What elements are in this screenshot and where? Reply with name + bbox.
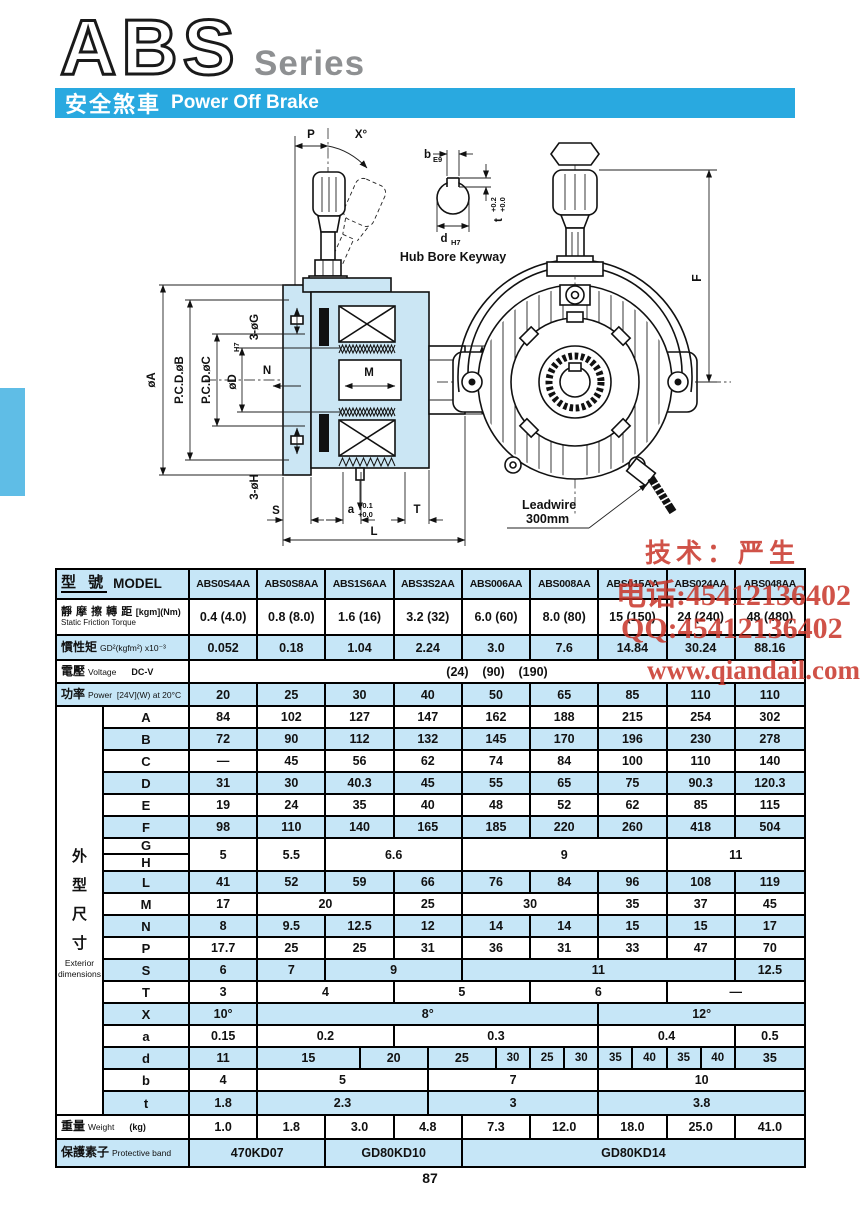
table-cell: 112 xyxy=(326,729,394,749)
div: 6791112.5 xyxy=(190,960,804,980)
div: 1.82.333.8 xyxy=(190,1092,804,1114)
table-cell: 59 xyxy=(326,872,394,892)
table-cell: 20 xyxy=(190,684,258,705)
div: 313040.34555657590.3120.3 xyxy=(190,773,804,793)
table-cell: 98 xyxy=(190,817,258,837)
rect xyxy=(339,360,401,400)
dim-label-a-tol-top: +0.1 xyxy=(358,501,373,510)
table-cell: 25 xyxy=(258,684,326,705)
rect xyxy=(547,262,603,276)
div: A84102127147162188215254302B729011213214… xyxy=(104,707,804,1114)
div: Power [24V](W) at 20°C xyxy=(88,691,181,700)
table-cell: 76 xyxy=(463,872,531,892)
table-row-b: b45710 xyxy=(104,1070,804,1092)
table-cell: 41 xyxy=(190,872,258,892)
table-cell: 4.8 xyxy=(395,1116,463,1138)
table-cell: 9 xyxy=(326,960,462,980)
div: M xyxy=(104,894,190,914)
dim-label-phi-d-tol: H7 xyxy=(232,342,241,352)
line xyxy=(651,478,673,512)
div: 470KD07GD80KD10GD80KD14 xyxy=(190,1140,804,1166)
table-cell: 52 xyxy=(531,795,599,815)
table-cell: 302 xyxy=(736,707,804,727)
div: 靜 摩 擦 轉 距[kgm](Nm) xyxy=(61,606,184,618)
table-cell: 140 xyxy=(736,751,804,771)
table-cell: 65 xyxy=(531,773,599,793)
table-cell: 41.0 xyxy=(736,1116,804,1138)
rect xyxy=(315,260,341,276)
table-cell: 6.0 (60) xyxy=(463,600,531,634)
div: 41525966768496108119 xyxy=(190,872,804,892)
dim-label-m: M xyxy=(364,367,374,379)
rect xyxy=(319,414,329,452)
table-cell: — xyxy=(190,751,258,771)
table-cell: 5 xyxy=(258,1070,429,1090)
series-label: Series xyxy=(254,44,365,84)
table-cell: 100 xyxy=(599,751,667,771)
table-row-G-H: GH55.56.6911 xyxy=(104,839,804,872)
table-cell: 132 xyxy=(395,729,463,749)
table-cell: 119 xyxy=(736,872,804,892)
table-cell: 25 xyxy=(531,1048,565,1068)
table-cell: 25.0 xyxy=(668,1116,736,1138)
div: b xyxy=(104,1070,190,1090)
dim-label-3h: 3-øH xyxy=(249,474,261,500)
dim-label-s: S xyxy=(272,505,280,517)
polygon xyxy=(551,143,599,165)
table-cell: 20 xyxy=(361,1048,429,1068)
div: —4556627484100110140 xyxy=(190,751,804,771)
model-header: ABS0S8AA xyxy=(258,570,326,598)
table-cell: 278 xyxy=(736,729,804,749)
table-cell: 35 xyxy=(736,1048,804,1068)
div: t xyxy=(104,1092,190,1114)
div: H xyxy=(104,855,188,871)
leadwire-label-1: Leadwire xyxy=(522,498,576,512)
table-cell: 504 xyxy=(736,817,804,837)
model-header: ABS3S2AA xyxy=(395,570,463,598)
div: 電壓VoltageDC-V xyxy=(57,661,190,682)
table-cell: 10 xyxy=(599,1070,804,1090)
table-cell: 90 xyxy=(258,729,326,749)
table-cell: 20 xyxy=(258,894,394,914)
div: (kg) xyxy=(129,1123,146,1133)
table-cell: 0.2 xyxy=(258,1026,394,1046)
div: Voltage xyxy=(88,668,116,677)
table-cell: 110 xyxy=(668,751,736,771)
dim-label-b: b xyxy=(424,149,431,161)
table-cell: 37 xyxy=(668,894,736,914)
div: GH xyxy=(104,839,190,870)
div: 重量Weight(kg) xyxy=(61,1120,184,1133)
rect xyxy=(356,468,364,480)
div: 電壓 xyxy=(61,665,85,678)
section-banner: 安全煞車 Power Off Brake xyxy=(55,88,795,118)
rect xyxy=(448,178,459,186)
rect xyxy=(557,256,593,262)
brake-body-section xyxy=(283,278,465,510)
table-cell: 14 xyxy=(531,916,599,936)
div: 型 號 xyxy=(61,575,107,594)
polygon xyxy=(561,215,589,228)
div: GD²(kgfm²) x10⁻³ xyxy=(100,644,166,653)
div: 保護素子Protective band xyxy=(57,1140,190,1166)
table-cell: 19 xyxy=(190,795,258,815)
div: L xyxy=(104,872,190,892)
table-cell: 6 xyxy=(190,960,258,980)
table-row-L: L41525966768496108119 xyxy=(104,872,804,894)
table-cell: 102 xyxy=(258,707,326,727)
table-cell: 33 xyxy=(599,938,667,958)
watermark-line-1: 技术：严生 xyxy=(645,533,800,570)
table-cell: 74 xyxy=(463,751,531,771)
table-cell: 110 xyxy=(258,817,326,837)
div: E xyxy=(104,795,190,815)
rect xyxy=(303,278,391,292)
div: 45710 xyxy=(190,1070,804,1090)
table-cell: 40 xyxy=(395,795,463,815)
watermark-line-4: www.qiandail.com xyxy=(647,655,860,686)
div: 功率Power [24V](W) at 20°C xyxy=(61,688,184,701)
table-cell: 8 xyxy=(190,916,258,936)
table-cell: 62 xyxy=(599,795,667,815)
dim-label-d-tol: H7 xyxy=(451,238,461,247)
table-cell: 90.3 xyxy=(668,773,736,793)
table-cell: 418 xyxy=(668,817,736,837)
div: 型 號MODEL xyxy=(57,570,190,598)
table-row-power: 功率Power [24V](W) at 20°C2025304050658511… xyxy=(57,684,804,707)
div: 17.72525313631334770 xyxy=(190,938,804,958)
table-cell: 7.3 xyxy=(463,1116,531,1138)
table-row-protect: 保護素子Protective band470KD07GD80KD10GD80KD… xyxy=(57,1140,804,1166)
model-header: ABS006AA xyxy=(463,570,531,598)
table-cell: 165 xyxy=(395,817,463,837)
table-cell: 56 xyxy=(326,751,394,771)
table-cell: 7 xyxy=(258,960,326,980)
table-cell: 127 xyxy=(326,707,394,727)
dim-label-pcd-b: P.C.D.øB xyxy=(174,356,186,404)
table-cell: 1.8 xyxy=(258,1116,326,1138)
circle xyxy=(572,292,579,299)
div: Protective band xyxy=(112,1149,171,1158)
table-cell: 220 xyxy=(531,817,599,837)
div: 尺 xyxy=(72,907,87,922)
table-cell: 0.5 xyxy=(736,1026,804,1046)
line xyxy=(589,484,647,528)
polygon xyxy=(318,216,340,232)
table-cell: 45 xyxy=(395,773,463,793)
table-cell: 5 xyxy=(190,839,258,870)
div: A xyxy=(104,707,190,727)
table-cell: 145 xyxy=(463,729,531,749)
table-cell: 3 xyxy=(429,1092,600,1114)
dim-label-a-tol-bot: +0.0 xyxy=(358,510,373,519)
table-cell: 52 xyxy=(258,872,326,892)
table-cell: 12 xyxy=(395,916,463,936)
table-cell: 170 xyxy=(531,729,599,749)
table-cell: 0.15 xyxy=(190,1026,258,1046)
div: 55.56.6911 xyxy=(190,839,804,870)
table-cell: 36 xyxy=(463,938,531,958)
div: 84102127147162188215254302 xyxy=(190,707,804,727)
div: d xyxy=(104,1048,190,1068)
div: 重量 xyxy=(61,1120,85,1133)
watermark-line-2: 电话:45412136402 xyxy=(616,570,851,614)
technical-drawing: P X° xyxy=(55,120,855,565)
table-cell: 2.24 xyxy=(395,636,463,659)
table-row-E: E1924354048526285115 xyxy=(104,795,804,817)
dim-label-pcd-c: P.C.D.øC xyxy=(201,356,213,404)
release-lever xyxy=(309,172,347,282)
table-row-A: A84102127147162188215254302 xyxy=(104,707,804,729)
watermark-line-3: QQ:45412136402 xyxy=(621,612,843,646)
div: 111520253025303540354035 xyxy=(190,1048,804,1068)
table-cell: 47 xyxy=(668,938,736,958)
line xyxy=(357,226,367,242)
table-row-N: N89.512.5121414151517 xyxy=(104,916,804,938)
table-cell: 12.5 xyxy=(736,960,804,980)
model-header: ABS1S6AA xyxy=(326,570,394,598)
div: 10°8°12° xyxy=(190,1004,804,1024)
table-cell: 3.0 xyxy=(326,1116,394,1138)
div: 17202530353745 xyxy=(190,894,804,914)
table-cell: 40 xyxy=(633,1048,667,1068)
table-cell: 147 xyxy=(395,707,463,727)
model-header: ABS0S4AA xyxy=(190,570,258,598)
table-cell: 7 xyxy=(429,1070,600,1090)
rect xyxy=(566,228,584,260)
circle xyxy=(469,379,476,386)
table-cell: 24 xyxy=(258,795,326,815)
model-header: ABS008AA xyxy=(531,570,599,598)
dim-label-x-angle: X° xyxy=(355,129,368,141)
table-cell: 35 xyxy=(668,1048,702,1068)
table-cell: 120.3 xyxy=(736,773,804,793)
table-cell: 12.5 xyxy=(326,916,394,936)
table-cell: 6.6 xyxy=(326,839,462,870)
div: 寸 xyxy=(72,936,87,951)
table-row-S: S6791112.5 xyxy=(104,960,804,982)
table-cell: 84 xyxy=(531,751,599,771)
table-cell: 17 xyxy=(190,894,258,914)
rect xyxy=(319,308,329,346)
dim-label-p: P xyxy=(307,129,315,141)
div: 慣性矩 xyxy=(61,641,97,654)
table-cell: 15 xyxy=(668,916,736,936)
table-cell: 10° xyxy=(190,1004,258,1024)
table-cell: 31 xyxy=(190,773,258,793)
table-cell: 84 xyxy=(190,707,258,727)
table-cell: 17.7 xyxy=(190,938,258,958)
dim-label-t-key: t xyxy=(493,218,505,222)
rect xyxy=(569,363,581,371)
table-cell: 31 xyxy=(531,938,599,958)
table-cell: 11 xyxy=(463,960,736,980)
div: 靜 摩 擦 轉 距 xyxy=(61,606,133,618)
table-cell: 30 xyxy=(565,1048,599,1068)
rect xyxy=(567,312,583,322)
table-row-d: d111520253025303540354035 xyxy=(104,1048,804,1070)
div: 1.01.83.04.87.312.018.025.041.0 xyxy=(190,1116,804,1138)
table-cell: 35 xyxy=(599,1048,633,1068)
table-cell: 17 xyxy=(736,916,804,936)
path xyxy=(328,146,367,168)
abs-logo: ABS xyxy=(60,8,240,86)
table-cell: 3.8 xyxy=(599,1092,804,1114)
dim-label-l: L xyxy=(370,526,377,538)
table-cell: 2.3 xyxy=(258,1092,429,1114)
table-cell: 9 xyxy=(463,839,668,870)
table-cell: 110 xyxy=(736,684,804,705)
table-cell: 31 xyxy=(395,938,463,958)
page-edge-tab xyxy=(0,388,25,496)
div: DC-V xyxy=(131,668,153,678)
table-cell: 84 xyxy=(531,872,599,892)
div: P xyxy=(104,938,190,958)
table-cell: 40 xyxy=(395,684,463,705)
table-cell: 115 xyxy=(736,795,804,815)
banner-title-zh: 安全煞車 xyxy=(65,87,161,119)
div: 靜 摩 擦 轉 距[kgm](Nm)Static Friction Torque xyxy=(57,600,190,634)
table-row-B: B7290112132145170196230278 xyxy=(104,729,804,751)
table-cell: 140 xyxy=(326,817,394,837)
table-row-weight: 重量Weight(kg)1.01.83.04.87.312.018.025.04… xyxy=(57,1116,804,1140)
table-cell: 55 xyxy=(463,773,531,793)
table-cell: 72 xyxy=(190,729,258,749)
div: 98110140165185220260418504 xyxy=(190,817,804,837)
table-cell: 75 xyxy=(599,773,667,793)
table-cell: — xyxy=(668,982,804,1002)
table-cell: 40.3 xyxy=(326,773,394,793)
table-cell: 254 xyxy=(668,707,736,727)
table-cell: 25 xyxy=(326,938,394,958)
table-cell: 230 xyxy=(668,729,736,749)
table-cell: 85 xyxy=(668,795,736,815)
div: 型 xyxy=(72,878,87,893)
table-cell: 196 xyxy=(599,729,667,749)
table-cell: 12.0 xyxy=(531,1116,599,1138)
div: MODEL xyxy=(113,577,162,592)
table-cell: 0.3 xyxy=(395,1026,600,1046)
table-cell: 62 xyxy=(395,751,463,771)
dim-label-3g: 3-øG xyxy=(249,314,261,340)
div: S xyxy=(104,960,190,980)
div: [kgm](Nm) xyxy=(136,608,181,618)
table-cell: 7.6 xyxy=(531,636,599,659)
front-view: F Leadwire 300mm xyxy=(437,143,731,528)
table-row-T: T3456— xyxy=(104,982,804,1004)
page-number: 87 xyxy=(0,1170,860,1186)
div: 89.512.5121414151517 xyxy=(190,916,804,936)
div: 重量Weight(kg) xyxy=(57,1116,190,1138)
div: 0.150.20.30.40.5 xyxy=(190,1026,804,1046)
div: 3456— xyxy=(190,982,804,1002)
dim-label-a: a xyxy=(348,504,355,516)
table-cell: 35 xyxy=(599,894,667,914)
table-cell: 470KD07 xyxy=(190,1140,326,1166)
table-cell: 0.4 xyxy=(599,1026,735,1046)
div: 7290112132145170196230278 xyxy=(190,729,804,749)
table-cell: 1.8 xyxy=(190,1092,258,1114)
circle xyxy=(675,379,682,386)
dim-label-n: N xyxy=(263,365,271,377)
div: D xyxy=(104,773,190,793)
div: 電壓VoltageDC-V xyxy=(61,665,184,678)
table-cell: 96 xyxy=(599,872,667,892)
dim-label-phi-a: øA xyxy=(146,372,158,387)
table-cell: 14 xyxy=(463,916,531,936)
table-cell: 30 xyxy=(497,1048,531,1068)
div: T xyxy=(104,982,190,1002)
div: Static Friction Torque xyxy=(61,619,184,628)
div: G xyxy=(104,839,188,855)
dims-outer-label: 外型尺寸Exteriordimensions xyxy=(57,707,104,1114)
table-cell: 1.0 xyxy=(190,1116,258,1138)
table-cell: 0.18 xyxy=(258,636,326,659)
div: Exterior xyxy=(65,958,94,968)
table-cell: 48 xyxy=(463,795,531,815)
table-cell: 25 xyxy=(429,1048,497,1068)
table-cell: 70 xyxy=(736,938,804,958)
table-cell: 0.4 (4.0) xyxy=(190,600,258,634)
div: a xyxy=(104,1026,190,1046)
table-cell: 185 xyxy=(463,817,531,837)
table-cell: 11 xyxy=(190,1048,258,1068)
table-cell: GD80KD14 xyxy=(463,1140,804,1166)
div: 功率Power [24V](W) at 20°C xyxy=(57,684,190,705)
table-cell: 9.5 xyxy=(258,916,326,936)
div: 外 xyxy=(72,849,87,864)
table-cell: 1.6 (16) xyxy=(326,600,394,634)
div: X xyxy=(104,1004,190,1024)
table-row-a: a0.150.20.30.40.5 xyxy=(104,1026,804,1048)
table-cell: GD80KD10 xyxy=(326,1140,462,1166)
exterior-dimensions-block: 外型尺寸ExteriordimensionsA84102127147162188… xyxy=(57,707,804,1116)
banner-title-en: Power Off Brake xyxy=(171,92,319,114)
table-cell: 5.5 xyxy=(258,839,326,870)
table-cell: 8° xyxy=(258,1004,599,1024)
table-cell: 18.0 xyxy=(599,1116,667,1138)
g: t +0.2 +0.0 xyxy=(489,197,507,222)
table-row-P: P17.72525313631334770 xyxy=(104,938,804,960)
table-cell: 5 xyxy=(395,982,531,1002)
table-cell: 188 xyxy=(531,707,599,727)
table-cell: 162 xyxy=(463,707,531,727)
table-cell: 1.04 xyxy=(326,636,394,659)
table-cell: 11 xyxy=(668,839,804,870)
div: 保護素子 xyxy=(61,1146,109,1159)
dim-label-phi-d: øD xyxy=(227,374,239,389)
table-cell: 15 xyxy=(258,1048,360,1068)
table-cell: 30 xyxy=(463,894,599,914)
table-cell: 0.052 xyxy=(190,636,258,659)
page: { "page": {"number": "87"}, "header": { … xyxy=(0,0,860,1215)
table-cell: 6 xyxy=(531,982,667,1002)
dim-label-b-tol: E9 xyxy=(433,155,442,164)
table-cell: 260 xyxy=(599,817,667,837)
div: Weight xyxy=(88,1123,114,1132)
table-row-X: X10°8°12° xyxy=(104,1004,804,1026)
div: 慣性矩GD²(kgfm²) x10⁻³ xyxy=(61,641,184,654)
hub-caption: Hub Bore Keyway xyxy=(400,250,506,264)
table-row-t: t1.82.333.8 xyxy=(104,1092,804,1114)
table-cell: 30 xyxy=(258,773,326,793)
table-cell: 85 xyxy=(599,684,667,705)
table-cell: 35 xyxy=(326,795,394,815)
div: C xyxy=(104,751,190,771)
table-cell: 65 xyxy=(531,684,599,705)
table-cell: 8.0 (80) xyxy=(531,600,599,634)
